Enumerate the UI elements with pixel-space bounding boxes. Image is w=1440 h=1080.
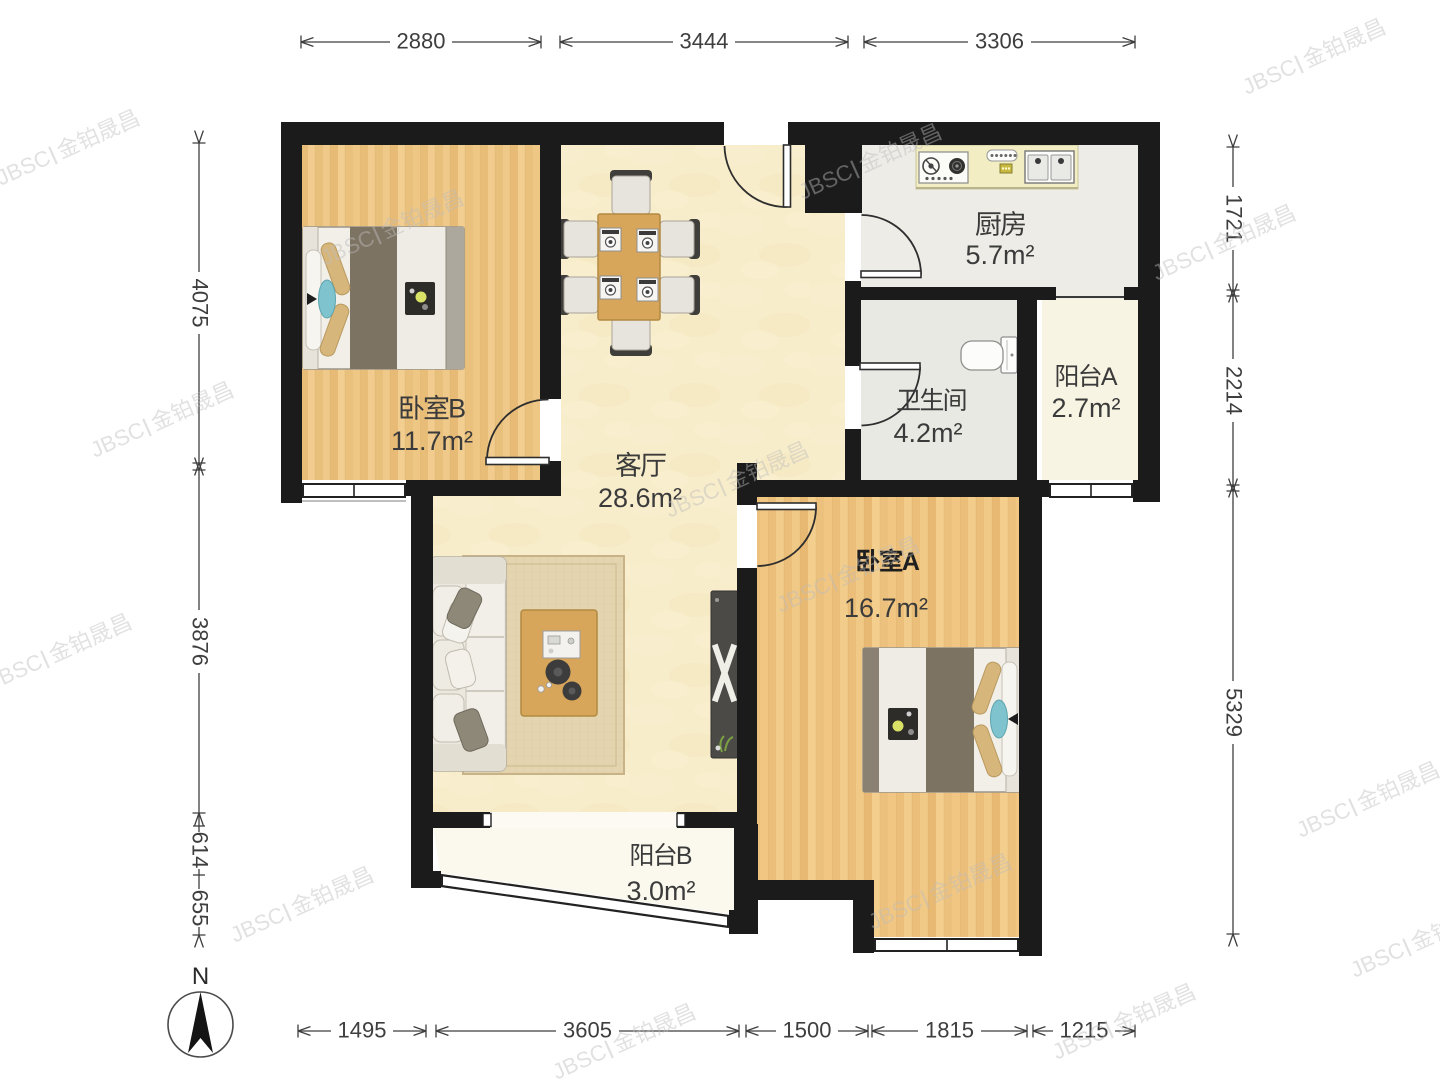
svg-text:2.7m²: 2.7m² bbox=[1051, 393, 1120, 423]
svg-text:1500: 1500 bbox=[783, 1018, 832, 1043]
svg-text:B: B bbox=[448, 394, 466, 424]
svg-text:11.7m²: 11.7m² bbox=[391, 426, 473, 456]
svg-text:2214: 2214 bbox=[1222, 366, 1247, 415]
svg-text:3876: 3876 bbox=[188, 617, 213, 666]
svg-text:3.0m²: 3.0m² bbox=[626, 876, 695, 906]
svg-text:3306: 3306 bbox=[975, 29, 1024, 54]
svg-text:3605: 3605 bbox=[563, 1018, 612, 1043]
svg-text:614: 614 bbox=[188, 832, 213, 869]
svg-text:2880: 2880 bbox=[397, 29, 446, 54]
svg-text:1495: 1495 bbox=[338, 1018, 387, 1043]
svg-text:4075: 4075 bbox=[188, 279, 213, 328]
svg-text:5.7m²: 5.7m² bbox=[965, 240, 1034, 270]
svg-text:655: 655 bbox=[188, 890, 213, 927]
svg-text:B: B bbox=[676, 842, 693, 870]
svg-text:3444: 3444 bbox=[680, 29, 729, 54]
svg-text:5329: 5329 bbox=[1222, 688, 1247, 737]
svg-text:N: N bbox=[192, 963, 209, 990]
svg-text:16.7m²: 16.7m² bbox=[844, 593, 928, 623]
svg-text:1815: 1815 bbox=[925, 1018, 974, 1043]
svg-text:A: A bbox=[1101, 363, 1118, 391]
svg-text:4.2m²: 4.2m² bbox=[893, 418, 962, 448]
